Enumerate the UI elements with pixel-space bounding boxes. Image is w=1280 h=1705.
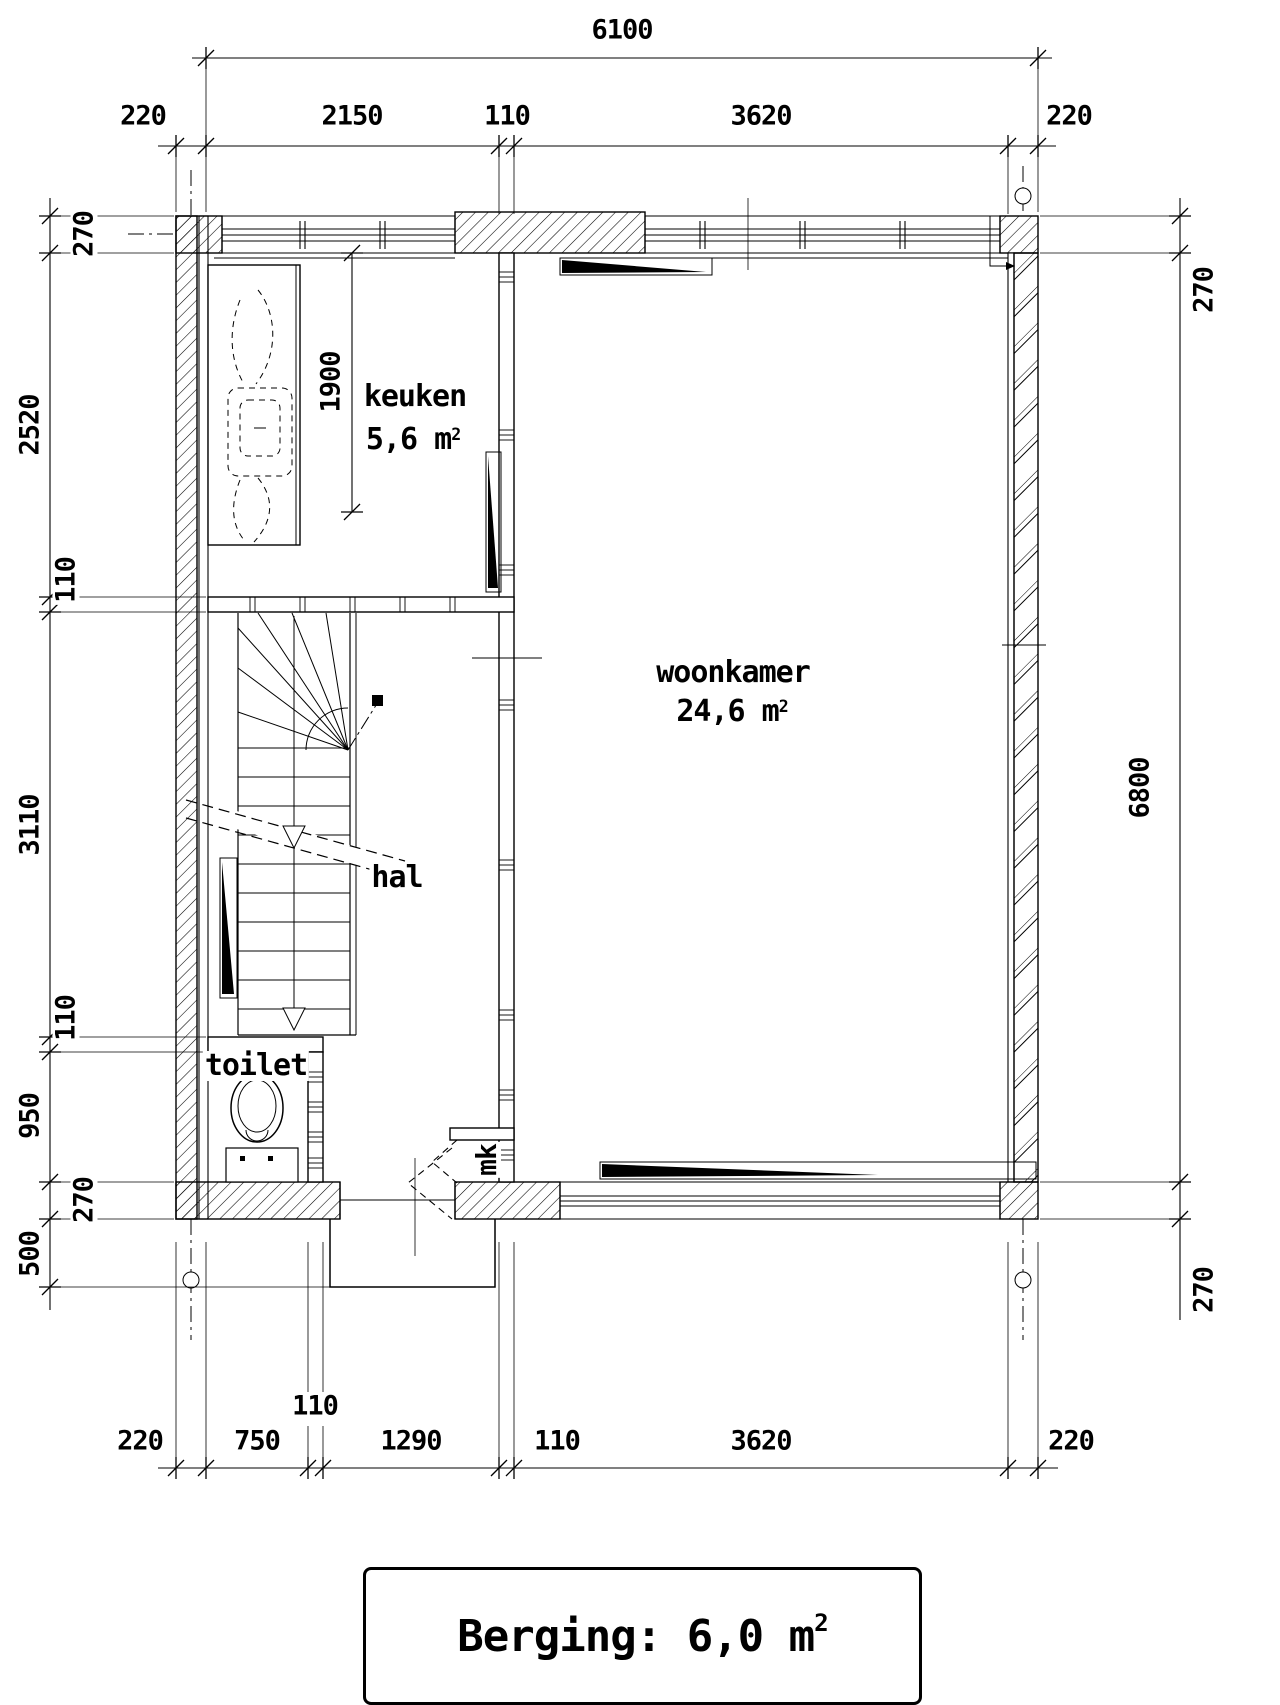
room-label-woonkamer: woonkamer: [654, 658, 812, 688]
dim-label-top-0: 220: [118, 103, 168, 130]
dim-label-bottom-4: 110: [532, 1428, 582, 1455]
staircase: [186, 613, 405, 1035]
dim-label-bottom-6: 220: [1046, 1428, 1096, 1455]
dim-label-left-1: 2520: [17, 392, 44, 457]
berging-title-sup: 2: [814, 1609, 828, 1637]
dim-label-left-3: 3110: [17, 792, 44, 857]
kitchen-counter: [208, 265, 300, 545]
dim-label-keuken-depth: 1900: [318, 349, 345, 414]
room-label-toilet: toilet: [203, 1051, 309, 1081]
dim-label-top-3: 3620: [728, 103, 793, 130]
dim-label-top-1: 2150: [319, 103, 384, 130]
floorplan: 6100 220 2150 110 3620 220 270 2520 110 …: [0, 0, 1280, 1705]
porch-outline: [330, 1219, 495, 1287]
dim-label-bottom-1: 750: [232, 1428, 282, 1455]
dim-label-left-2: 110: [53, 555, 80, 605]
dim-label-bottom-2: 110: [290, 1393, 340, 1420]
dim-label-top-4: 220: [1044, 103, 1094, 130]
toilet-fixture: [226, 1074, 298, 1182]
dim-label-bottom-5: 3620: [728, 1428, 793, 1455]
room-label-mk: mk: [473, 1142, 501, 1178]
dim-label-top-2: 110: [482, 103, 532, 130]
dim-label-right-1: 6800: [1127, 755, 1154, 820]
room-area-keuken-value: 5,6 m: [366, 422, 451, 457]
room-label-hal: hal: [369, 863, 424, 893]
doors: [340, 1140, 457, 1219]
berging-title-box: Berging: 6,0 m2: [363, 1567, 922, 1705]
dim-label-left-4: 110: [53, 993, 80, 1043]
dim-label-left-0: 270: [71, 209, 98, 259]
dim-label-left-6: 270: [71, 1175, 98, 1225]
room-area-woonkamer-value: 24,6 m: [676, 694, 778, 729]
dim-label-left-7: 500: [17, 1229, 44, 1279]
room-area-keuken-sup: 2: [451, 425, 460, 444]
dim-label-top-overall: 6100: [589, 17, 654, 44]
room-area-woonkamer-sup: 2: [779, 697, 788, 716]
dim-label-bottom-3: 1290: [378, 1428, 443, 1455]
room-label-keuken: keuken: [362, 382, 468, 412]
dim-label-left-5: 950: [17, 1091, 44, 1141]
berging-title-text: Berging: 6,0 m: [457, 1611, 814, 1662]
dim-label-right-0: 270: [1191, 265, 1218, 315]
room-area-keuken: 5,6 m2: [364, 425, 462, 455]
room-area-woonkamer: 24,6 m2: [674, 697, 789, 727]
dim-label-right-2: 270: [1191, 1265, 1218, 1315]
dim-label-bottom-0: 220: [115, 1428, 165, 1455]
